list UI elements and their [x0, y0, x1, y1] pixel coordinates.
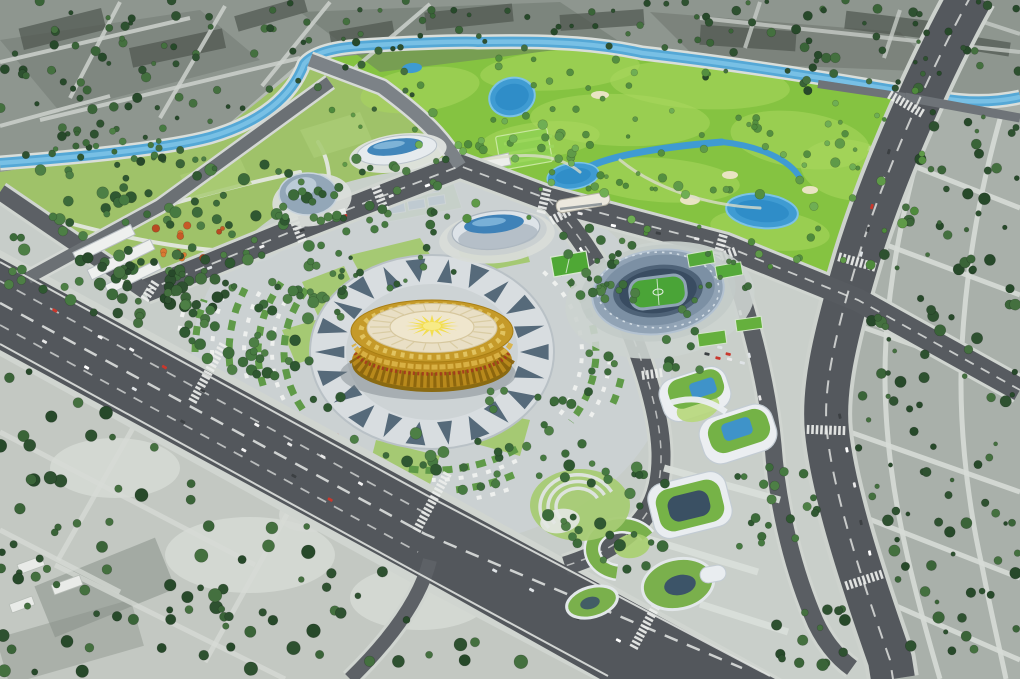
tree	[301, 545, 315, 559]
tree	[759, 480, 768, 489]
tree	[920, 586, 930, 596]
tree	[192, 54, 199, 61]
tree	[770, 481, 779, 490]
tree	[4, 280, 13, 289]
tree	[869, 493, 876, 500]
tree	[433, 181, 442, 190]
tree	[1000, 396, 1011, 407]
tree	[842, 130, 849, 137]
crosswalk-stripe	[656, 369, 657, 378]
tree	[93, 611, 99, 617]
tree	[356, 269, 364, 277]
tree	[4, 373, 14, 383]
tree	[694, 14, 699, 19]
tree	[288, 286, 298, 296]
tree	[133, 318, 143, 328]
tree	[987, 591, 995, 599]
tree	[494, 448, 502, 456]
tree	[893, 349, 897, 353]
tree	[744, 282, 751, 289]
tree	[251, 210, 262, 221]
tree	[817, 659, 829, 671]
tree	[616, 287, 623, 294]
tree	[212, 214, 222, 224]
tree	[797, 635, 808, 646]
tree	[611, 9, 615, 13]
tree	[882, 117, 886, 121]
tree	[815, 226, 821, 232]
tree	[203, 521, 214, 532]
tree	[223, 347, 235, 359]
tree	[301, 40, 306, 45]
tree	[658, 150, 665, 157]
tree	[615, 250, 622, 257]
tree	[874, 113, 879, 118]
tree	[1014, 176, 1019, 181]
tree	[119, 36, 124, 41]
tree	[627, 215, 635, 223]
tree	[78, 231, 87, 240]
tree	[148, 142, 154, 148]
tree	[866, 260, 876, 270]
tree	[937, 220, 941, 224]
tree	[658, 174, 667, 183]
tree	[964, 118, 972, 126]
tree	[290, 361, 300, 371]
tree	[735, 473, 741, 479]
tree	[73, 398, 83, 408]
tree	[889, 396, 898, 405]
tree	[755, 250, 763, 258]
tree	[47, 66, 55, 74]
tree	[810, 202, 819, 211]
tree	[1014, 550, 1020, 557]
tree	[403, 279, 407, 283]
tree	[401, 68, 408, 75]
tree	[430, 229, 436, 235]
tree	[830, 53, 840, 63]
tree	[479, 145, 488, 154]
tree	[699, 132, 705, 138]
tree	[597, 285, 601, 289]
tree	[171, 11, 180, 20]
tree	[604, 175, 608, 179]
tree	[587, 479, 596, 488]
tree	[387, 285, 394, 292]
tree	[150, 443, 158, 451]
tree	[586, 141, 594, 149]
tree	[803, 151, 810, 158]
tree	[957, 613, 966, 622]
tree	[49, 213, 57, 221]
tree	[138, 66, 146, 74]
tree	[315, 650, 324, 659]
tree	[131, 155, 138, 162]
tree	[323, 295, 330, 302]
tree	[912, 87, 919, 94]
tree	[768, 264, 773, 269]
tree	[238, 555, 246, 563]
tree	[669, 108, 674, 113]
tree	[556, 24, 562, 30]
tree	[200, 255, 210, 265]
tree	[541, 134, 549, 142]
tree	[106, 15, 111, 20]
tree	[926, 305, 935, 314]
tree	[850, 164, 857, 171]
tree	[187, 480, 195, 488]
tree	[210, 321, 220, 331]
tree	[58, 226, 68, 236]
tree	[250, 50, 258, 58]
tree	[531, 82, 537, 88]
tree	[43, 565, 51, 573]
tree	[491, 479, 500, 488]
tree	[472, 199, 481, 208]
tree	[1010, 299, 1020, 310]
tree	[550, 106, 556, 112]
tree	[546, 78, 553, 85]
tree	[359, 169, 366, 176]
tree	[897, 218, 907, 228]
tree	[800, 43, 809, 52]
tree	[192, 300, 201, 309]
tree	[567, 69, 574, 76]
crosswalk-stripe	[647, 370, 648, 379]
tree	[539, 187, 543, 191]
tree	[862, 21, 866, 25]
tree	[96, 541, 107, 552]
tree	[778, 655, 785, 662]
tree	[106, 518, 114, 526]
tree	[866, 417, 871, 422]
tree	[981, 499, 989, 507]
tree	[825, 141, 830, 146]
tree	[410, 92, 415, 97]
tree	[814, 51, 822, 59]
tree	[748, 19, 756, 27]
tree	[270, 371, 279, 380]
tree	[307, 624, 321, 638]
tree	[401, 456, 412, 467]
tree	[524, 14, 530, 20]
tree	[455, 26, 463, 34]
tree	[874, 314, 881, 321]
tree	[189, 99, 197, 107]
tree	[482, 39, 487, 44]
tree	[227, 365, 237, 375]
tree	[594, 518, 606, 530]
tree	[570, 514, 577, 521]
tree	[135, 298, 142, 305]
tree	[1010, 392, 1015, 397]
tree	[113, 308, 123, 318]
tree	[221, 252, 227, 258]
tree	[548, 179, 555, 186]
tree	[930, 444, 936, 450]
tree	[18, 244, 30, 256]
tree	[189, 309, 198, 318]
tree	[916, 402, 922, 408]
tree	[402, 0, 410, 5]
tree	[951, 552, 956, 557]
tree	[72, 42, 79, 49]
tree	[218, 606, 225, 613]
tree	[873, 33, 880, 40]
tree	[46, 411, 58, 423]
tree	[428, 6, 436, 14]
tree	[117, 293, 127, 303]
tree	[284, 169, 293, 178]
tree	[839, 648, 848, 657]
tree	[51, 529, 58, 536]
tree	[242, 254, 253, 265]
tree	[853, 148, 857, 152]
tree	[923, 56, 928, 61]
tree	[926, 560, 936, 570]
tree	[1014, 67, 1020, 76]
tree	[614, 259, 620, 265]
golden-drum-stadium	[340, 300, 516, 400]
tree	[920, 71, 925, 76]
tree	[934, 518, 943, 527]
tree	[307, 258, 314, 265]
tree	[464, 140, 472, 148]
tree	[706, 282, 712, 288]
tree	[290, 335, 301, 346]
tree	[637, 22, 644, 29]
tree	[156, 145, 163, 152]
tree	[22, 151, 30, 159]
tree	[423, 244, 430, 251]
tree	[809, 64, 817, 72]
tree	[166, 221, 174, 229]
tree	[1010, 567, 1020, 579]
tree	[125, 269, 131, 275]
tree	[428, 108, 437, 117]
tree	[161, 43, 167, 49]
tree	[308, 297, 319, 308]
tree	[220, 192, 227, 199]
tree	[76, 665, 89, 678]
tree	[969, 266, 976, 273]
tree	[514, 655, 528, 669]
tree	[984, 167, 992, 175]
tree	[732, 6, 741, 15]
tree	[90, 130, 99, 139]
tree	[17, 276, 26, 285]
tree	[35, 165, 46, 176]
tree	[417, 82, 424, 89]
tree	[172, 250, 182, 260]
tree	[575, 526, 583, 534]
tree	[736, 115, 742, 121]
tree	[83, 86, 92, 95]
tree	[984, 254, 995, 265]
tree	[631, 531, 637, 537]
tree	[570, 24, 574, 28]
tree	[112, 149, 118, 155]
tree	[687, 342, 695, 350]
tree	[225, 258, 235, 268]
tree	[559, 232, 567, 240]
tree	[971, 333, 982, 344]
tree	[70, 86, 76, 92]
tree	[269, 7, 276, 14]
tree	[53, 581, 60, 588]
tree	[705, 18, 713, 26]
tree	[275, 284, 281, 290]
tree	[568, 160, 574, 166]
tree	[412, 127, 418, 133]
tree	[205, 13, 212, 20]
tree	[85, 430, 97, 442]
tree	[961, 518, 972, 529]
tree	[53, 147, 58, 152]
tree	[476, 33, 481, 38]
tree	[459, 148, 466, 155]
tree	[433, 158, 439, 164]
tree	[961, 45, 966, 50]
tree	[625, 488, 636, 499]
tree	[799, 469, 808, 478]
tree	[849, 194, 856, 201]
tree	[825, 121, 832, 128]
tree	[135, 488, 148, 501]
tree	[614, 539, 626, 551]
tree	[152, 225, 160, 233]
tree	[930, 109, 936, 115]
tree	[839, 614, 850, 625]
tree	[994, 556, 1002, 564]
tree	[895, 576, 901, 582]
tree	[394, 281, 400, 287]
tree	[97, 262, 107, 272]
tree	[555, 155, 563, 163]
tree	[343, 162, 348, 167]
tree	[335, 608, 346, 619]
tree	[176, 159, 185, 168]
tree	[143, 135, 148, 140]
tree	[630, 288, 640, 298]
tree	[91, 46, 101, 56]
tree	[35, 101, 40, 106]
tree	[961, 631, 971, 641]
tree	[913, 21, 918, 26]
tree	[1012, 369, 1018, 375]
tree	[366, 217, 373, 224]
tree	[458, 485, 468, 495]
tree	[304, 523, 310, 529]
tree	[426, 220, 435, 229]
tree	[349, 256, 353, 260]
tree	[662, 335, 671, 344]
tree	[644, 226, 651, 233]
tree	[65, 294, 76, 305]
tree	[298, 179, 305, 186]
tree	[44, 471, 57, 484]
tree	[195, 549, 208, 562]
tree	[974, 149, 984, 159]
tree	[966, 588, 976, 598]
tree	[723, 186, 730, 193]
tree	[971, 47, 978, 54]
tree	[451, 269, 457, 275]
tree	[623, 565, 632, 574]
tree	[119, 138, 126, 145]
tree	[875, 484, 880, 489]
tree	[418, 33, 423, 38]
tree	[925, 253, 929, 257]
tree	[588, 8, 595, 15]
tree	[0, 629, 9, 641]
tree	[430, 464, 441, 475]
tree	[420, 461, 427, 468]
tree	[73, 143, 80, 150]
tree	[460, 463, 468, 471]
tree	[157, 643, 166, 652]
tree	[648, 539, 654, 545]
tree	[303, 240, 314, 251]
tree	[664, 1, 670, 7]
tree	[357, 7, 362, 12]
tree	[26, 474, 37, 485]
tree	[866, 78, 872, 84]
tree	[338, 273, 344, 279]
tree	[710, 187, 717, 194]
tree	[918, 156, 926, 164]
tree	[604, 282, 609, 287]
tree	[340, 268, 345, 273]
tree	[150, 258, 158, 266]
tree	[762, 143, 769, 150]
tree	[886, 394, 891, 399]
tree	[213, 200, 220, 207]
tree	[223, 623, 230, 630]
tree	[803, 502, 812, 511]
tree	[99, 406, 112, 419]
tree	[589, 461, 595, 467]
tree	[115, 485, 123, 493]
tree	[123, 175, 129, 181]
tree	[522, 442, 531, 451]
tree	[979, 588, 985, 594]
tree	[102, 565, 112, 575]
tree	[616, 179, 623, 186]
tree	[807, 234, 815, 242]
tree	[600, 188, 609, 197]
tree	[392, 164, 400, 172]
tree	[604, 352, 614, 362]
aerial-render	[0, 0, 1020, 679]
tree	[564, 460, 575, 471]
tree	[61, 635, 73, 647]
tree	[228, 231, 235, 238]
tree	[803, 11, 812, 20]
tree	[107, 61, 112, 66]
tree	[31, 572, 41, 582]
tree	[758, 540, 765, 547]
tree	[992, 163, 1002, 173]
tree	[751, 124, 757, 130]
tree	[660, 479, 669, 488]
tree	[829, 69, 838, 78]
tree	[901, 562, 910, 571]
tree	[107, 289, 118, 300]
tree	[888, 463, 892, 467]
tree	[266, 522, 278, 534]
tree	[906, 512, 910, 516]
